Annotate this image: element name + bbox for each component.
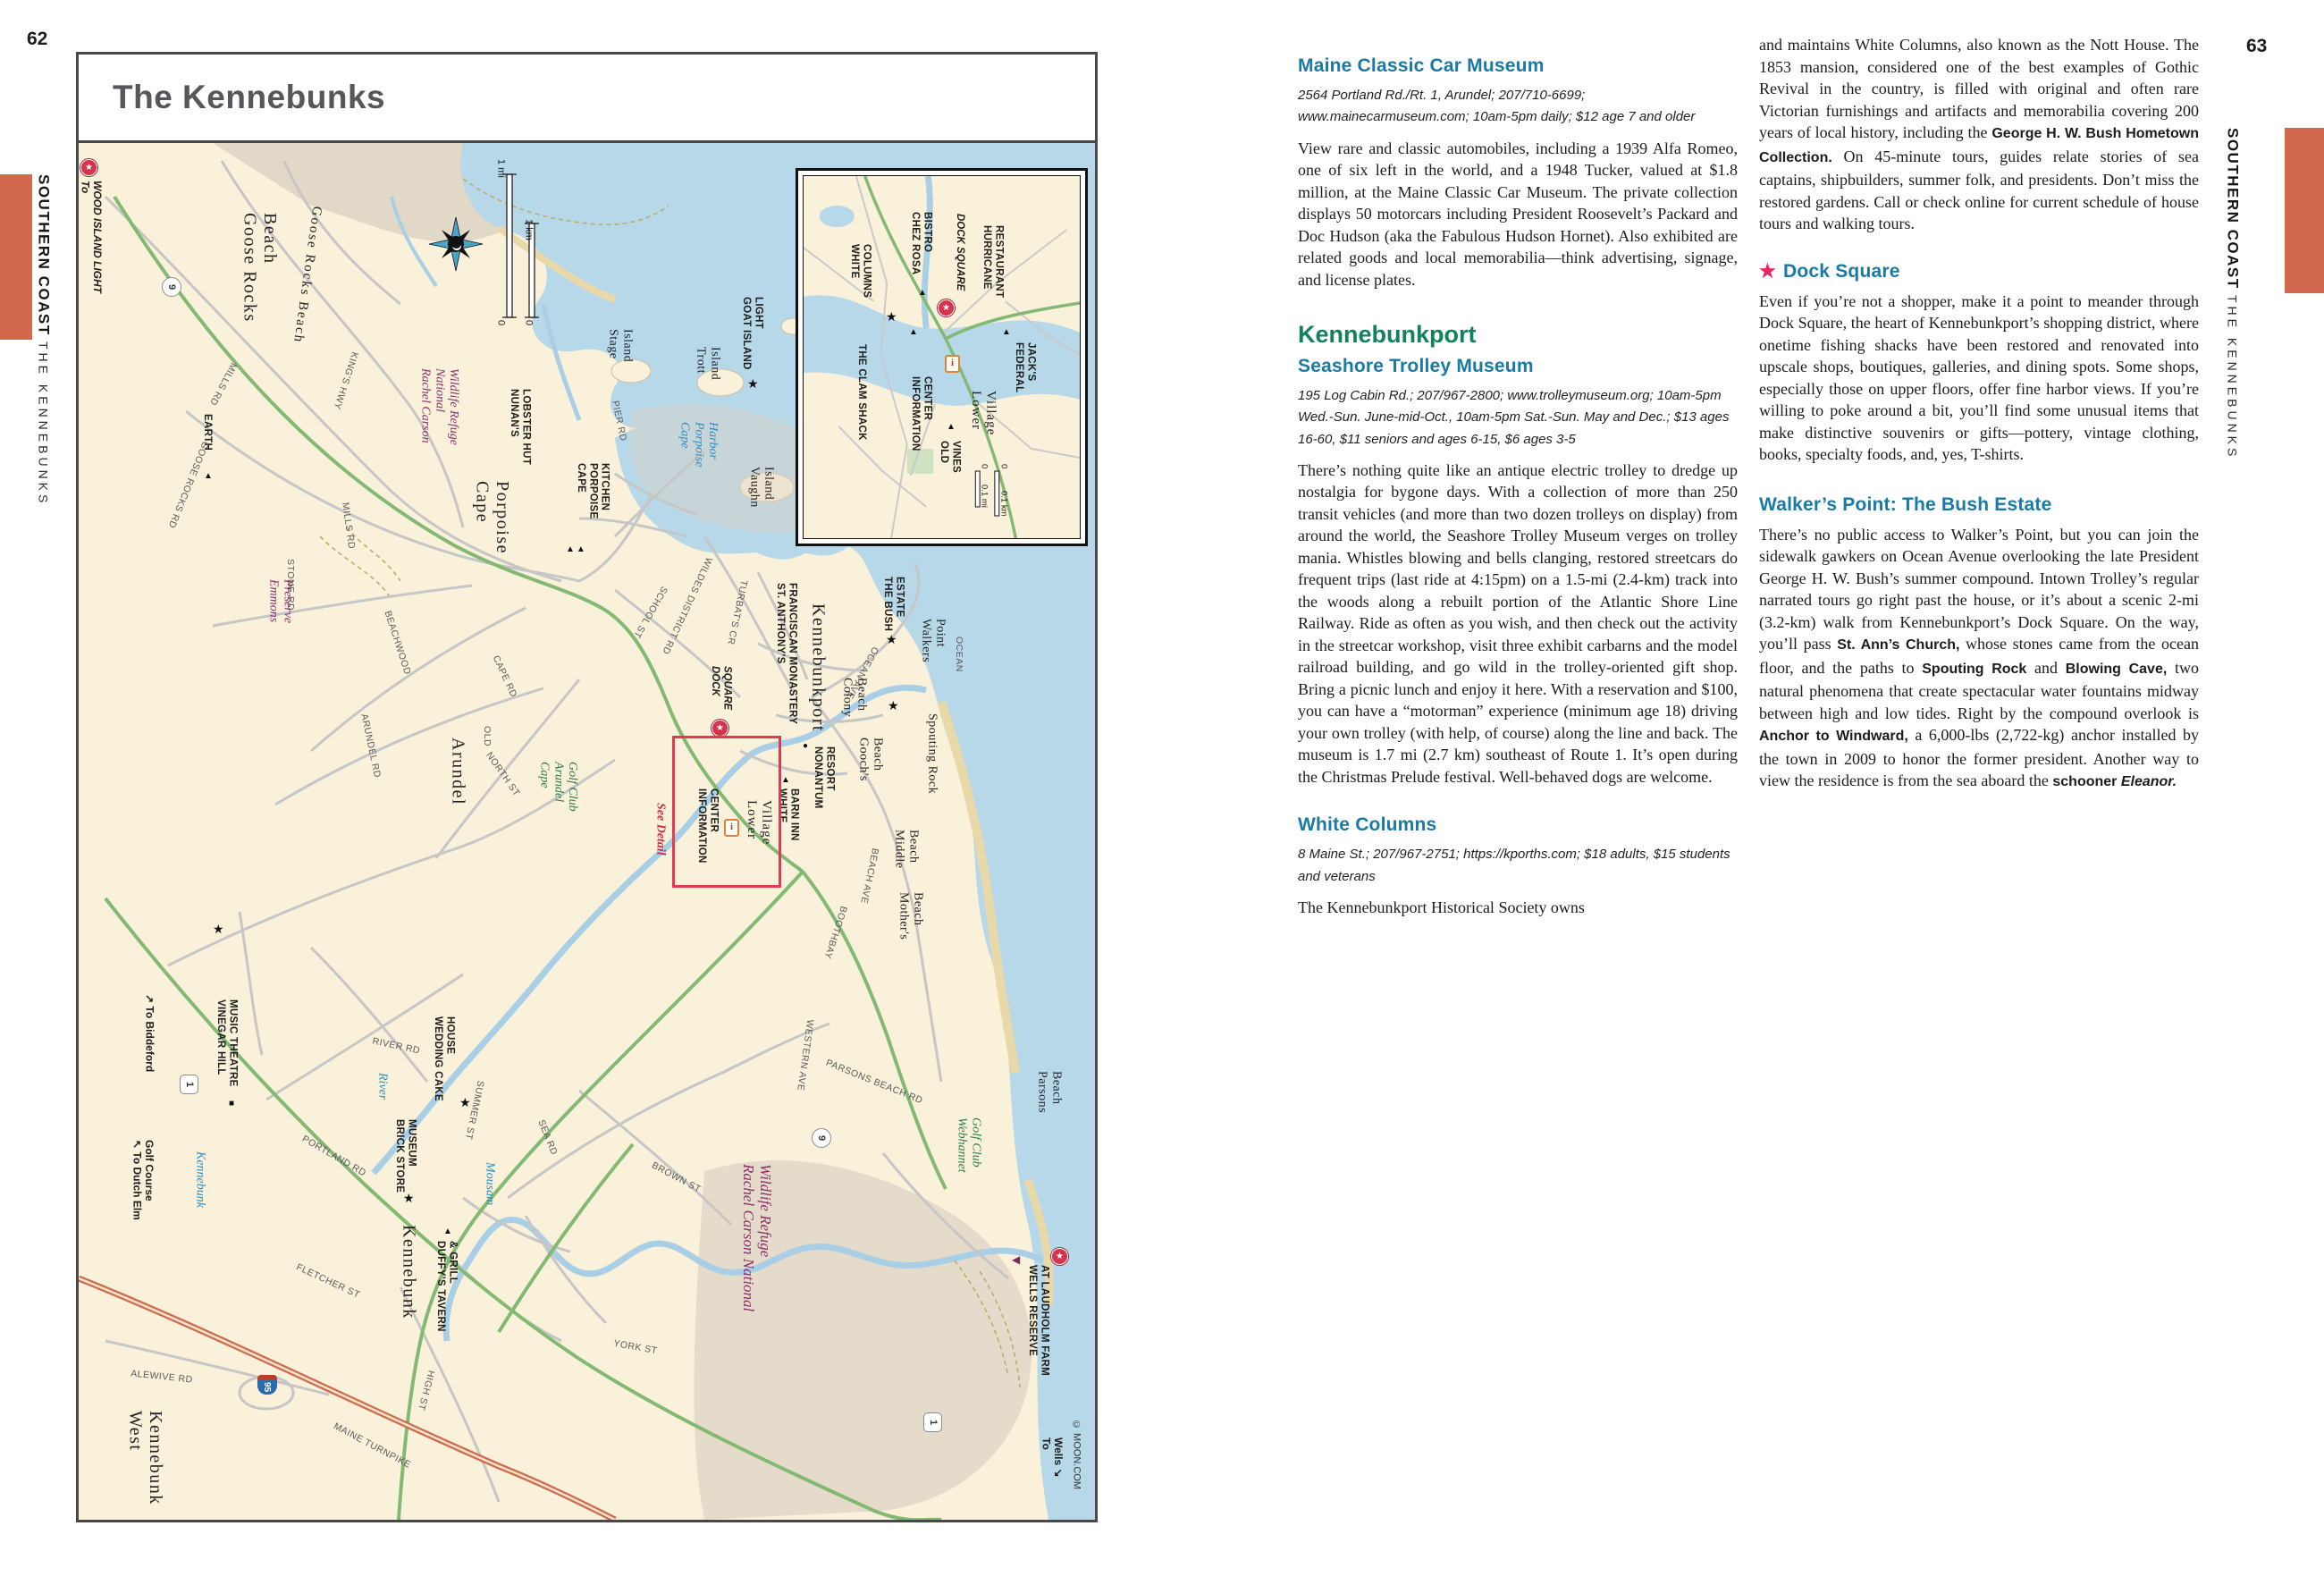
info-maine-classic-car-museum: 2564 Portland Rd./Rt. 1, Arundel; 207/71… [1298,85,1738,129]
duffys-tavern: DUFFY'S TAVERN & GRILL [434,1241,458,1332]
sidebar-right: SOUTHERN COAST THE KENNEBUNKS [2223,128,2242,459]
cape-arundel-golf: Cape Arundel Golf Club [537,762,579,812]
nonantum-resort: NONANTUM RESORT [812,746,835,808]
dock-square-main: DOCK SQUARE [709,666,732,710]
keyword-anchor-to-windward: Anchor to Windward, [1759,729,1908,744]
inset-chez-rosa: CHEZ ROSA BISTRO [909,212,932,274]
shield-1-east: 1 [923,1412,942,1432]
body-white-columns-continued: and maintains White Columns, also known … [1759,34,2199,235]
cape-porpoise-harbor: Cape Porpoise Harbor [678,422,720,468]
goat-island-light: GOAT ISLAND LIGHT [740,297,763,370]
mk-brick-star: ★ [403,1192,415,1204]
mk-wood-island-sight: ★ [80,159,97,176]
map-title: The Kennebunks [79,79,385,116]
heading-white-columns: White Columns [1298,814,1738,836]
goose-rocks-beach-town: Goose Rocks Beach [240,213,280,323]
kennebunk-river-label: Kennebunk [193,1151,207,1208]
sidebar-chapter-right: SOUTHERN COAST [2224,128,2241,290]
inset-dock-square: DOCK SQUARE [954,214,965,291]
keyword-spouting-rock: Spouting Rock [1922,662,2026,677]
inset-mk-dock-sight: ★ [938,299,955,316]
mothers-beach: Mother's Beach [897,892,924,940]
shield-1-west: 1 [180,1075,198,1094]
info-seashore-trolley-museum: 195 Log Cabin Rd.; 207/967-2800; www.tro… [1298,385,1738,451]
text-segment: and [2026,659,2065,677]
goochs-beach: Gooch's Beach [856,738,884,781]
inset-mk-chez-tri: ▲ [918,289,929,298]
moon-credit: © MOON.COM [1071,1420,1082,1489]
arundel-town: Arundel [448,738,467,805]
emmons-preserve: Emmons Preserve [266,579,294,623]
body-walkers-point: There’s no public access to Walker’s Poi… [1759,524,2199,794]
sidebar-section-right: THE KENNEBUNKS [2225,295,2239,459]
mk-wells-sight: ★ [1051,1248,1068,1265]
inset-map: WHITE COLUMNSCHEZ ROSA BISTRODOCK SQUARE… [803,175,1081,539]
webhannet-golf: Webhannet Golf Club [955,1117,982,1173]
inset-graphic [804,176,1080,538]
heading-dock-square: ★Dock Square [1759,260,2199,282]
scale-0b: 0 [523,320,534,325]
scale-1km: 1 km [523,219,534,240]
map-title-band: The Kennebunks [79,55,1095,143]
column-1: Maine Classic Car Museum 2564 Portland R… [1298,55,1738,919]
page-62: 62 SOUTHERN COAST THE KENNEBUNKS The Ken… [0,0,1162,1585]
inset-scale-mi: 0.1 mi [979,485,989,508]
to-biddeford: ↗ To Biddeford [143,994,155,1072]
cape-porpoise-kitchen: CAPE PORPOISE KITCHEN [575,463,610,518]
bush-estate: THE BUSH ESTATE [881,577,905,631]
inset-clam-shack: THE CLAM SHACK [855,344,867,441]
column-2: and maintains White Columns, also known … [1759,34,2199,794]
shield-9-north: 9 [162,277,181,297]
nunans-lobster-hut: NUNAN'S LOBSTER HUT [508,389,531,465]
inset-scale-0a: 0 [979,464,989,468]
inset-scale-km: 0.1 km [998,491,1008,517]
heading-maine-classic-car-museum: Maine Classic Car Museum [1298,55,1738,77]
text-segment: There’s no public access to Walker’s Poi… [1759,526,2199,653]
wells-reserve: WELLS RESERVE AT LAUDHOLM FARM [1026,1265,1049,1376]
sidebar-left: SOUTHERN COAST THE KENNEBUNKS [34,174,53,506]
scale-1mi: 1 mi [495,159,506,178]
west-kennebunk-town: West Kennebunk [125,1411,165,1505]
mk-nunans-tri: ▲▲ [566,545,587,554]
inset-hurricane: HURRICANE RESTAURANT [981,225,1004,298]
mk-vinegar-sq: ■ [229,1100,234,1109]
trott-island: Trott Island [694,347,721,380]
inset-white-columns: WHITE COLUMNS [848,244,871,298]
body-seashore-trolley-museum: There’s nothing quite like an antique el… [1298,459,1738,788]
mk-monastery-dot: ● [803,742,808,751]
mk-whitebarn-tri: ▲ [781,776,792,785]
stage-island: Stage Island [606,329,634,362]
inset-scale-0b: 0 [998,464,1008,468]
sidebar-color-block-right [2285,128,2324,293]
body-dock-square: Even if you’re not a shopper, make it a … [1759,291,2199,466]
shield-i95: 95 [257,1375,277,1395]
mk-earth-tri: ▲ [204,472,215,481]
mousam-river-label: Mousam [483,1162,497,1205]
mk-wedding-star: ★ [459,1096,471,1109]
mk-spouting-star: ★ [888,699,899,712]
scale-0a: 0 [495,320,506,325]
inset-mk-wc-star: ★ [886,310,897,323]
walkers-point: Walkers Point [919,619,947,662]
heading-seashore-trolley-museum: Seashore Trolley Museum [1298,356,1738,377]
map-frame: The Kennebunks [76,52,1098,1522]
see-detail: See Detail [653,803,668,856]
st-anthonys: ST. ANTHONY'S FRANCISCAN MONASTERY [774,583,797,724]
rachel-carson-north: Rachel Carson National Wildlife Refuge [418,368,460,445]
heading-walkers-point: Walker’s Point: The Bush Estate [1759,494,2199,516]
parsons-beach: Parsons Beach [1035,1071,1063,1113]
vinegar-hill: VINEGAR HILL MUSIC THEATRE [215,999,238,1087]
inset-mk-federal-tri: ▲ [1002,328,1013,337]
river-label-2: River [375,1073,390,1100]
inset-mk-oldvines-tri: ▲ [947,423,957,432]
rachel-carson-south: Rachel Carson National Wildlife Refuge [740,1164,774,1311]
inset-federal-jacks: FEDERAL JACK'S [1013,342,1036,392]
book-spread: 62 SOUTHERN COAST THE KENNEBUNKS The Ken… [0,0,2324,1585]
mk-bush-star: ★ [886,633,897,645]
page-63: 63 SOUTHERN COAST THE KENNEBUNKS Maine C… [1162,0,2324,1585]
wedding-cake-house: WEDDING CAKE HOUSE [432,1016,455,1101]
inset-mk-clam-tri: ▲ [909,328,920,337]
star-icon: ★ [1759,261,1776,282]
sidebar-section-left: THE KENNEBUNKS [36,341,50,506]
kennebunkport-town: Kennebunkport [808,603,828,732]
inset-lower-village: Lower Village [968,391,998,435]
shield-9-south: 9 [812,1128,831,1148]
keyword-blowing-cave: Blowing Cave, [2066,662,2168,677]
sidebar-chapter-left: SOUTHERN COAST [35,174,52,336]
to-dutch-elm: ↖ To Dutch Elm Golf Course [131,1140,155,1220]
page-number-left: 62 [27,29,47,50]
spouting-rock: Spouting Rock [925,713,939,794]
map-the-kennebunks: WHITE COLUMNSCHEZ ROSA BISTRODOCK SQUARE… [79,143,1095,1520]
brick-store-museum: BRICK STORE MUSEUM [393,1119,417,1193]
keyword-schooner: schooner [2052,774,2120,789]
heading-dock-square-text: Dock Square [1783,261,1900,282]
keyword-eleanor: Eleanor. [2121,774,2177,789]
mk-duffys-tri: ▲ [443,1227,454,1236]
vaughn-island: Vaughn Island [747,467,775,508]
mk-wells-tree: ◀ [1012,1254,1020,1265]
kennebunk-town: Kennebunk [399,1225,418,1319]
page-number-right: 63 [2246,36,2267,57]
cape-porpoise-town: Cape Porpoise [472,481,512,554]
middle-beach: Middle Beach [892,830,920,868]
body-maine-classic-car-museum: View rare and classic automobiles, inclu… [1298,138,1738,291]
info-white-columns: 8 Maine St.; 207/967-2751; https://kport… [1298,844,1738,888]
mk-seashore-star: ★ [213,923,224,935]
heading-kennebunkport: Kennebunkport [1298,321,1738,349]
inset-info-center: INFORMATION CENTER [909,376,932,451]
inset-map-frame: WHITE COLUMNSCHEZ ROSA BISTRODOCK SQUARE… [796,168,1088,546]
to-wells: To Wells ↘ [1040,1437,1064,1478]
see-detail-rectangle [672,736,781,888]
keyword-st-anns-church: St. Ann’s Church, [1837,637,1959,653]
colony-beach: Colony Beach [840,678,868,717]
sidebar-color-block-left [0,174,32,340]
body-white-columns-start: The Kennebunkport Historical Society own… [1298,897,1738,919]
inset-old-vines: OLD VINES [938,441,961,473]
to-wood-island-light: To WOOD ISLAND LIGHT [79,181,103,293]
ocean-bracket: OCEAN [953,637,964,672]
old-rd: OLD [481,726,492,746]
mk-dock-sight: ★ [712,720,728,737]
mk-goat-star: ★ [747,377,759,390]
inset-mk-info: i [945,355,960,373]
